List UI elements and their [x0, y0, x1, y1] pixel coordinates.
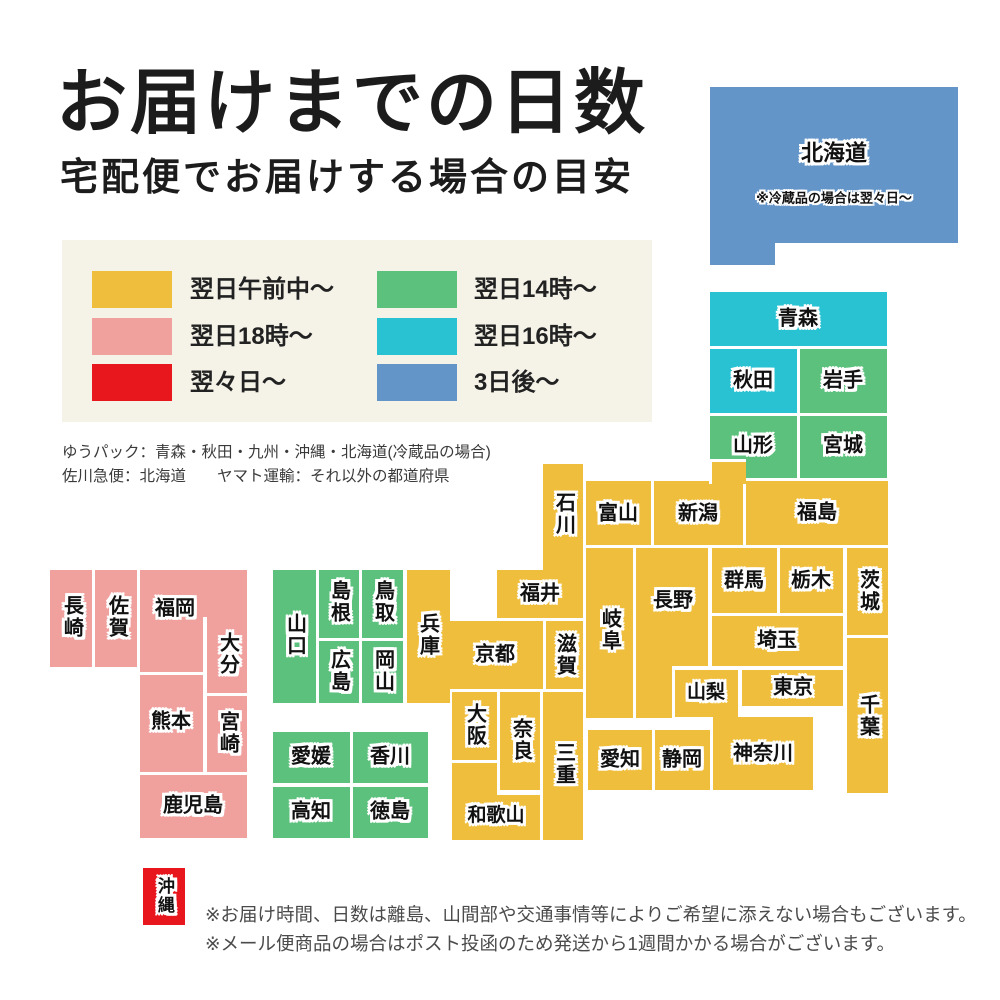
map-label-kagawa: 香川 — [370, 747, 410, 768]
map-label-saitama: 埼玉 — [757, 631, 797, 652]
map-label-tottori: 鳥取 — [372, 580, 393, 624]
map-label-toyama: 富山 — [598, 504, 638, 525]
map-region-rect-niigata — [709, 459, 746, 484]
map-label-hiroshima: 広島 — [328, 649, 349, 693]
map-label-okinawa: 沖縄 — [155, 877, 173, 915]
map-label-shimane: 島根 — [328, 580, 349, 624]
map-label-tokyo: 東京 — [773, 678, 813, 699]
map-label-fukushima: 福島 — [797, 503, 837, 524]
map-note-hokkaido: ※冷蔵品の場合は翌々日〜 — [756, 188, 912, 207]
map-label-shizuoka: 静岡 — [662, 750, 702, 771]
map-label-iwate: 岩手 — [823, 371, 863, 392]
map-label-aichi: 愛知 — [600, 750, 640, 771]
map-label-oita: 大分 — [217, 632, 238, 676]
map-label-nagano: 長野 — [653, 591, 693, 612]
map-label-wakayama: 和歌山 — [467, 806, 524, 826]
map-label-kochi: 高知 — [291, 802, 331, 823]
map-label-tokushima: 徳島 — [370, 802, 410, 823]
map-label-osaka: 大阪 — [464, 703, 485, 747]
map-label-mie: 三重 — [553, 742, 574, 786]
map-region-rect-fukuoka — [140, 617, 203, 672]
map-label-chiba: 千葉 — [857, 694, 878, 738]
map-label-nagasaki: 長崎 — [61, 595, 82, 639]
map-label-yamagata: 山形 — [733, 436, 773, 457]
map-label-hyogo: 兵庫 — [417, 613, 438, 657]
map-label-fukuoka: 福岡 — [155, 599, 195, 620]
map-label-miyazaki: 宮崎 — [217, 711, 238, 755]
map-label-kyoto: 京都 — [475, 645, 515, 666]
map-label-hokkaido: 北海道 — [801, 141, 867, 164]
map-label-yamanashi: 山梨 — [687, 683, 725, 703]
map-label-gunma: 群馬 — [724, 571, 764, 592]
map-label-shiga: 滋賀 — [554, 633, 575, 677]
map-region-rect-hokkaido — [710, 243, 775, 265]
map-label-okayama: 岡山 — [372, 649, 393, 693]
map-region-rect-nagano — [636, 666, 672, 718]
map-label-ishikawa: 石川 — [553, 492, 574, 536]
map-label-miyagi: 宮城 — [823, 436, 863, 457]
map-label-nara: 奈良 — [510, 718, 531, 762]
map-label-aomori: 青森 — [778, 309, 818, 330]
map-label-saga: 佐賀 — [106, 595, 127, 639]
japan-delivery-map: 北海道※冷蔵品の場合は翌々日〜青森秋田岩手山形宮城福島新潟富山石川福井群馬栃木茨… — [0, 0, 1000, 1000]
map-label-fukui: 福井 — [520, 584, 560, 605]
map-label-kagoshima: 鹿児島 — [163, 796, 223, 817]
map-label-akita: 秋田 — [733, 371, 773, 392]
map-label-kanagawa: 神奈川 — [733, 744, 793, 765]
map-label-tochigi: 栃木 — [791, 571, 831, 592]
footer-note-1: ※お届け時間、日数は離島、山間部や交通事情等によりご希望に添えない場合もございま… — [205, 901, 977, 927]
map-label-kumamoto: 熊本 — [151, 712, 191, 733]
map-label-ibaraki: 茨城 — [857, 569, 878, 613]
map-label-yamaguchi: 山口 — [284, 613, 305, 657]
map-region-rect-wakayama — [452, 763, 497, 840]
map-label-ehime: 愛媛 — [291, 747, 331, 768]
map-label-gifu: 岐阜 — [599, 608, 620, 652]
map-label-niigata: 新潟 — [678, 504, 718, 525]
footer-note-2: ※メール便商品の場合はポスト投函のため発送から1週間かかる場合がございます。 — [205, 930, 895, 956]
